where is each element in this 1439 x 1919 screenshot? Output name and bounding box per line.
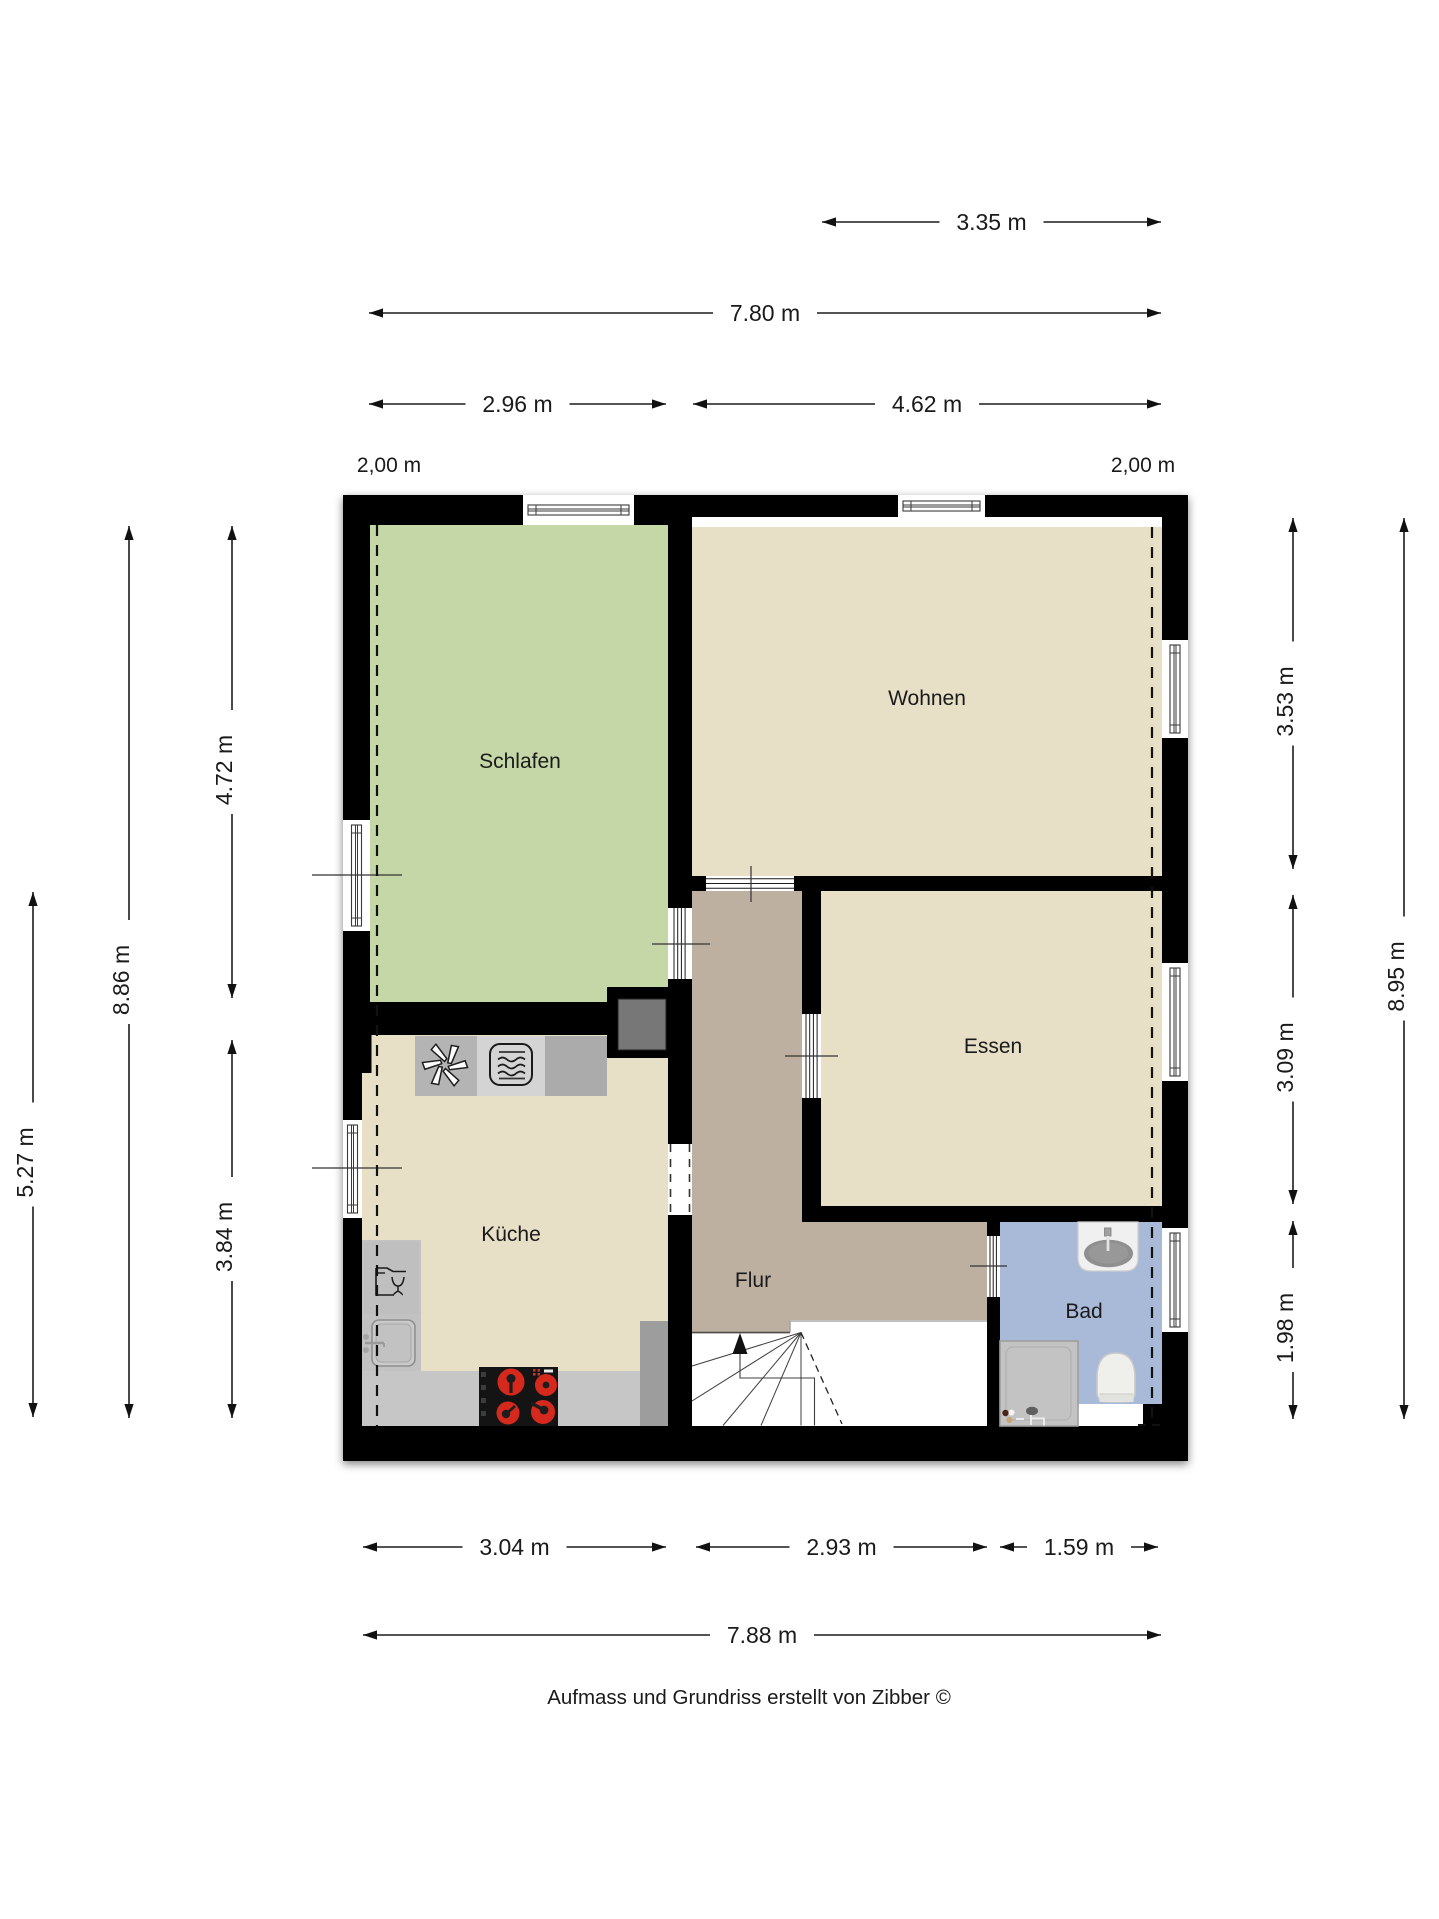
svg-text:2,00 m: 2,00 m [1111, 454, 1175, 477]
svg-text:3.53 m: 3.53 m [1272, 666, 1298, 736]
svg-text:8.86 m: 8.86 m [108, 945, 134, 1015]
svg-text:4.62 m: 4.62 m [892, 391, 962, 417]
svg-text:5.27 m: 5.27 m [12, 1127, 38, 1197]
svg-text:Schlafen: Schlafen [479, 750, 561, 773]
svg-text:Aufmass und Grundriss erstellt: Aufmass und Grundriss erstellt von Zibbe… [547, 1686, 951, 1709]
svg-text:2.93 m: 2.93 m [806, 1534, 876, 1560]
svg-text:Wohnen: Wohnen [888, 687, 966, 710]
svg-text:3.04 m: 3.04 m [479, 1534, 549, 1560]
svg-text:Küche: Küche [481, 1223, 541, 1246]
svg-text:Bad: Bad [1065, 1300, 1102, 1323]
svg-text:8.95 m: 8.95 m [1383, 941, 1409, 1011]
svg-text:3.84 m: 3.84 m [211, 1202, 237, 1272]
svg-text:7.88 m: 7.88 m [727, 1622, 797, 1648]
svg-text:2.96 m: 2.96 m [482, 391, 552, 417]
svg-text:3.35 m: 3.35 m [956, 209, 1026, 235]
svg-text:1.59 m: 1.59 m [1044, 1534, 1114, 1560]
svg-text:Flur: Flur [735, 1269, 771, 1292]
svg-text:7.80 m: 7.80 m [730, 300, 800, 326]
svg-text:3.09 m: 3.09 m [1272, 1022, 1298, 1092]
svg-text:2,00 m: 2,00 m [357, 454, 421, 477]
svg-text:4.72 m: 4.72 m [211, 735, 237, 805]
svg-text:1.98 m: 1.98 m [1272, 1293, 1298, 1363]
svg-text:Essen: Essen [964, 1035, 1022, 1058]
